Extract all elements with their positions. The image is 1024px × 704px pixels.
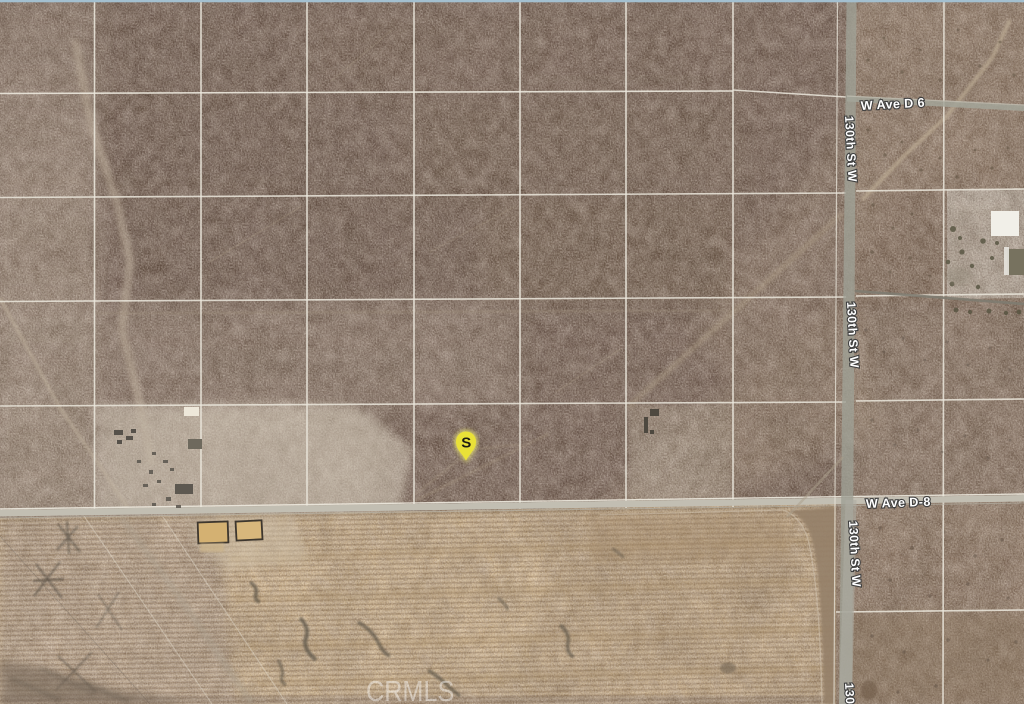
svg-text:130th: 130th [842, 682, 858, 704]
svg-text:S: S [461, 435, 471, 452]
svg-text:CRMLS: CRMLS [366, 674, 454, 704]
svg-text:W Ave D-8: W Ave D-8 [866, 495, 931, 511]
